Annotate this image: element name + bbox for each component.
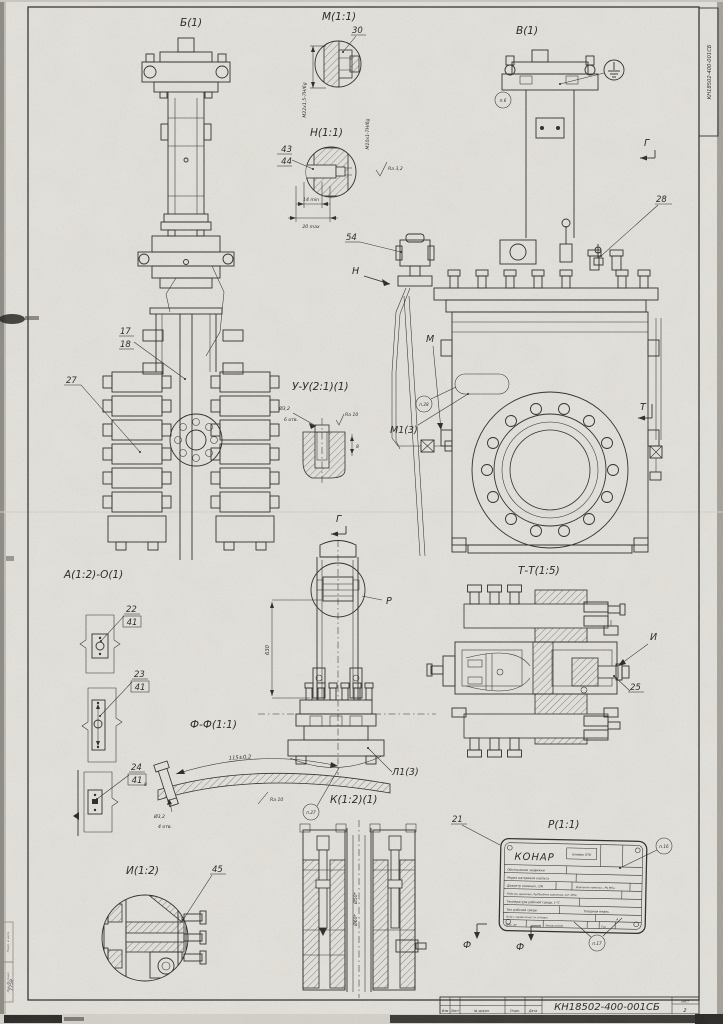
scan-artifacts — [0, 0, 723, 1024]
scanned-drawing-sheet: КН18502-400-001СБ Б(1) — [0, 0, 723, 1024]
